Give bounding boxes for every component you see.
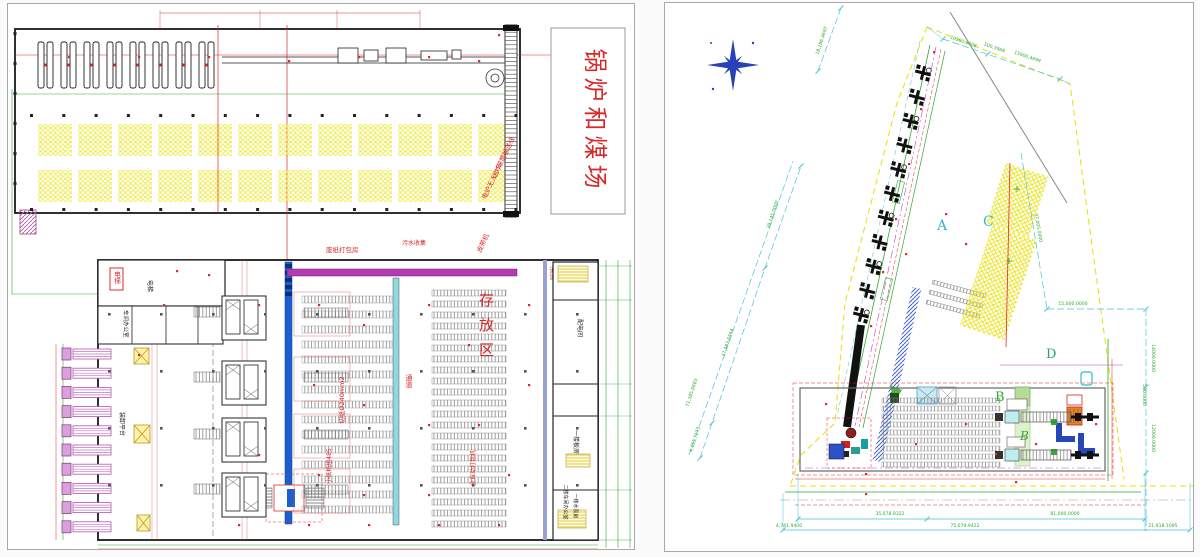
- dim-right-v3: 14000.0000: [1150, 344, 1156, 372]
- workshop-plan-drawing: 锅炉和煤场 动力滚筒输送线 电炉无人小车 皮带机 电梯: [8, 4, 634, 549]
- office-label: 车间办公室: [122, 310, 130, 338]
- storage-area-label: 存放区: [477, 292, 495, 367]
- waste-packing-label: 废纸打包房: [326, 245, 359, 254]
- dim-left-seg1: 4,493.7173: [688, 426, 702, 453]
- cutting-label: 切纸Ø240mm2: [337, 376, 346, 423]
- roller-conveyor-field: [302, 296, 392, 513]
- sewage-label: 污水收集: [402, 239, 426, 247]
- strip-machines: [852, 64, 933, 324]
- coal-piles: [960, 163, 1049, 347]
- dim-right-v2: 12000.0000: [1150, 424, 1156, 452]
- baler-label: 全自动打包机: [469, 450, 477, 486]
- dim-left-seg2: 37,483.6464: [721, 328, 736, 358]
- bottom-rack-strips: [882, 398, 1000, 467]
- zone-a: A: [936, 218, 948, 234]
- zone-b2: B: [1019, 429, 1029, 443]
- dim-bottom5: 21,918.1095: [1148, 523, 1177, 529]
- zone-c: C: [983, 214, 994, 230]
- power-room-label: 配电间: [576, 319, 584, 337]
- pump-room-label: 一楼水泵房: [572, 493, 579, 518]
- pipe-run-2: [1081, 433, 1095, 451]
- north-compass-icon: [707, 39, 759, 91]
- aisle-band: [543, 260, 547, 540]
- boiler-coal-yard-block: 锅炉和煤场: [551, 28, 625, 214]
- dim-left-seg3: 39,145.0000: [766, 200, 781, 230]
- office-block: 电梯 电梯 车间办公室: [98, 260, 225, 344]
- dim-right-v1: 500.0000: [1141, 384, 1147, 406]
- zone-b: B: [995, 390, 1005, 405]
- dimension-ticks: [698, 6, 1193, 533]
- loading-platform-label: 装卸平台: [118, 412, 126, 436]
- dim-bottom1: 35,078.9322: [875, 511, 904, 517]
- site-plan-panel: A C D B B 4,493.7173 37,483.6464 39,145.…: [664, 2, 1194, 552]
- dim-top1: 10360.9008: [949, 35, 977, 50]
- elevator-label: 电梯: [146, 280, 154, 292]
- page-canvas: 锅炉和煤场 动力滚筒输送线 电炉无人小车 皮带机 电梯: [0, 0, 1200, 557]
- office-2f-label: 二楼车间办公室: [562, 484, 569, 519]
- workshop-plan-panel: 锅炉和煤场 动力滚筒输送线 电炉无人小车 皮带机 电梯: [7, 3, 635, 550]
- dim-bottom3: 4,741.9400: [776, 523, 802, 529]
- dim-right1: 37,005.0000: [1032, 213, 1043, 243]
- top-building: [15, 10, 551, 262]
- elevator-tag: 电梯: [113, 270, 121, 286]
- utility-rooms-column: 配电间 一楼板房 二楼车间办公室 一楼水泵房: [553, 262, 598, 540]
- dim-top3: 15900.4699: [1013, 50, 1041, 65]
- boiler-coal-yard-label: 锅炉和煤场: [581, 49, 609, 194]
- hatch-block: [20, 210, 36, 234]
- dim-left-top: 18,186.4697: [815, 26, 830, 56]
- belt-machine-label: 皮带机: [475, 232, 492, 254]
- dim-right2: 15,000.0000: [1058, 301, 1087, 307]
- stairs-icon: [566, 454, 590, 467]
- site-plan-drawing: A C D B B 4,493.7173 37,483.6464 39,145.…: [665, 3, 1193, 551]
- small-unit-label: 小纸机组485: [325, 448, 333, 484]
- zone-d: D: [1046, 347, 1056, 362]
- dim-bottom2: 81,000.0000: [1050, 511, 1079, 517]
- dim-top2: 500.3968: [983, 42, 1006, 55]
- stairs-icon: [558, 266, 588, 282]
- dim-left-total: 72,385.6683: [685, 378, 700, 408]
- passage-label-2: 通道: [405, 373, 413, 389]
- magenta-cross-conveyor: [287, 269, 517, 276]
- cyan-conveyor: [393, 278, 399, 525]
- board-room-label: 一楼板房: [572, 430, 580, 454]
- dim-bottom4: 75,079.9422: [950, 523, 979, 529]
